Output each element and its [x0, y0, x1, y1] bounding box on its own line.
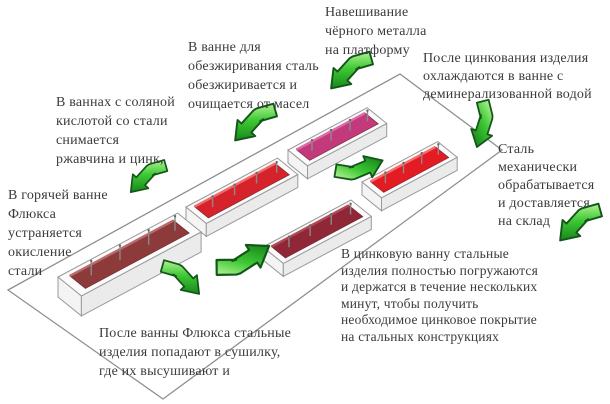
label-zinc: В цинковую ванну стальные изделия полнос… [341, 246, 538, 345]
label-acid: В ваннах с соляной кислотой со стали сни… [56, 93, 175, 169]
label-mechanical: Сталь механически обрабатывается и доста… [498, 141, 594, 231]
flow-arrow-icon [213, 234, 269, 286]
rinse-bath-bright-red [362, 142, 457, 211]
label-degreasing: В ванне для обезжиривания сталь обезжири… [188, 38, 319, 114]
label-dryer: После ванны Флюкса стальные изделия попа… [99, 324, 291, 381]
flow-arrow-icon [161, 260, 199, 294]
degreasing-bath-red [186, 158, 298, 236]
galvanizing-process-diagram: Навешивание чёрного металла на платформу… [0, 0, 610, 404]
label-flux: В горячей ванне Флюкса устраняется окисл… [8, 186, 108, 281]
label-hanging: Навешивание чёрного металла на платформу [325, 3, 427, 60]
label-cooling: После цинкования изделия охлаждаются в в… [423, 50, 592, 104]
